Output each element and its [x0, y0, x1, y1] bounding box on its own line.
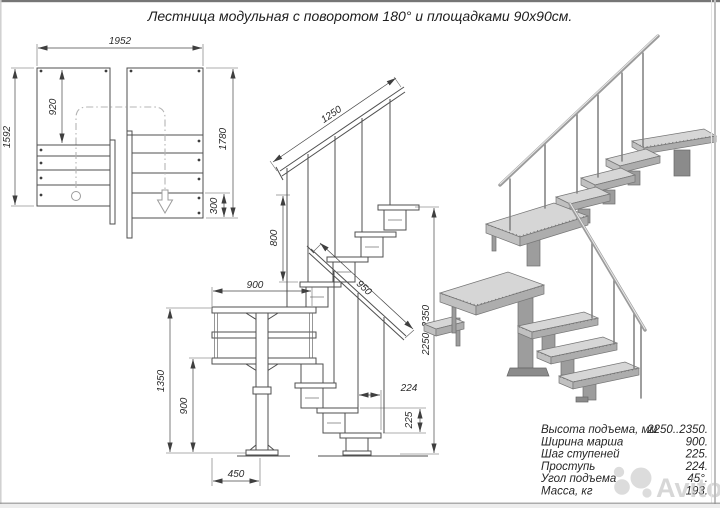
render-upper-platform: [486, 203, 588, 266]
plan-view: 1952 920 1592 1780 300: [2, 36, 238, 238]
watermark-brand-text: Avito: [656, 473, 720, 503]
dim-label: 900: [179, 397, 190, 414]
spec-label: Ширина марша: [541, 436, 623, 448]
dim-lower-platform-height: 900: [179, 358, 211, 452]
avito-logo-icon: [631, 468, 652, 489]
dim-plan-last-step: 300: [205, 193, 230, 217]
spec-value: 225.: [685, 449, 708, 461]
spec-row: Ширина марша 900.: [541, 436, 708, 448]
spec-value: 224.: [685, 461, 708, 473]
page-title: Лестница модульная с поворотом 180° и пл…: [147, 8, 572, 24]
spec-row: Шаг ступеней 225.: [541, 449, 708, 461]
spec-label: Угол подъема: [540, 473, 616, 485]
dim-label: 1952: [109, 36, 132, 47]
dim-plan-depth: 1592: [2, 68, 34, 206]
spec-label: Высота подъема, мм: [541, 424, 657, 436]
render-lower-flight: [518, 312, 639, 402]
dim-label: 1350: [156, 369, 167, 392]
dim-label: 950: [354, 278, 374, 298]
avito-watermark: Avito: [614, 467, 720, 503]
spec-label: Шаг ступеней: [541, 449, 620, 461]
staircase-drawing-page: Лестница модульная с поворотом 180° и пл…: [0, 0, 720, 508]
plan-rail-bar-right: [127, 131, 132, 238]
avito-logo-icon: [614, 479, 630, 495]
dim-upper-platform-height: 1350: [156, 308, 246, 453]
spec-label: Масса, кг: [541, 486, 593, 498]
dim-label: 1780: [218, 127, 229, 150]
dim-riser-height: 225: [360, 408, 426, 433]
walkline-start-circle: [72, 192, 81, 201]
dim-label: 224: [400, 383, 418, 394]
spec-label: Проступь: [541, 461, 595, 473]
dim-label: 225: [404, 411, 415, 429]
spec-row: Высота подъема, мм 2250..2350.: [541, 424, 708, 436]
staircase-3d-render: [424, 35, 716, 402]
dim-plan-width: 1952: [37, 36, 203, 66]
plan-rail-bar-left: [110, 140, 115, 224]
avito-logo-icon: [642, 488, 651, 497]
spec-value: 2250..2350.: [646, 424, 708, 436]
dim-plan-right-depth: 1780: [206, 68, 238, 218]
dim-label: 900: [247, 280, 264, 291]
dim-march-width: 900: [212, 280, 312, 306]
technical-drawing: Лестница модульная с поворотом 180° и пл…: [0, 0, 720, 508]
dim-base-offset: 450: [212, 458, 260, 486]
dim-rail-height: 800: [269, 195, 298, 282]
spec-value: 900.: [686, 436, 708, 448]
dim-plan-platform-depth: 920: [48, 70, 62, 143]
dim-label: 920: [48, 98, 59, 115]
elevation-view: 1250 800 900 950 2250..2350 224: [156, 77, 439, 486]
elevation-lower-flight: [295, 364, 381, 455]
dim-label: 800: [269, 229, 280, 246]
walkline-path: [76, 107, 165, 190]
dim-label: 450: [228, 469, 245, 480]
dim-label: 1250: [319, 104, 344, 126]
spec-row: Проступь 224.: [541, 461, 708, 473]
avito-logo-icon: [614, 467, 624, 477]
dim-label: 1592: [2, 125, 13, 148]
dim-label: 300: [209, 197, 220, 214]
